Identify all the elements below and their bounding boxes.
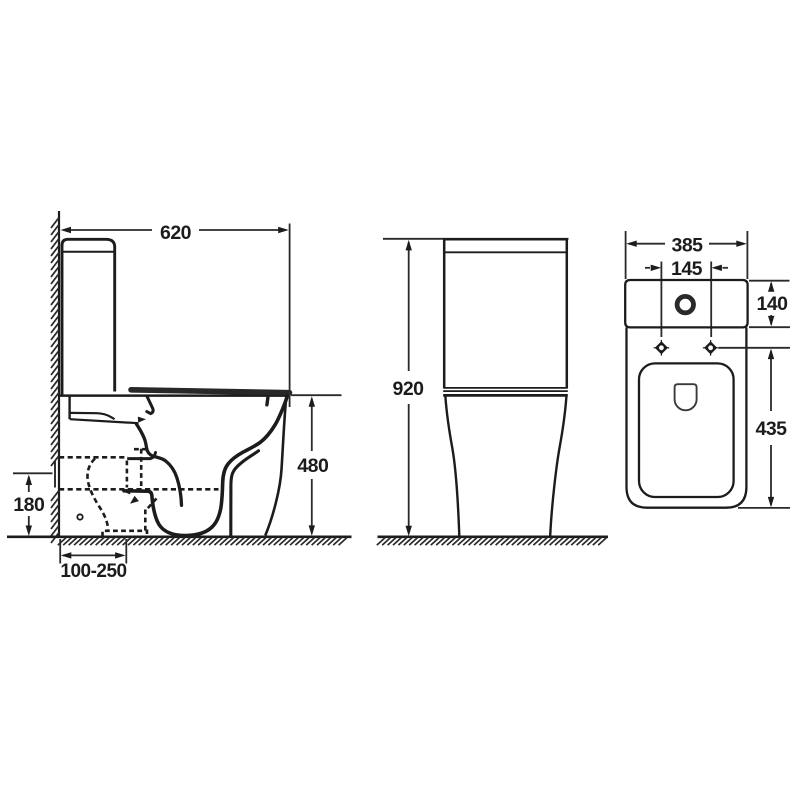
svg-text:435: 435 bbox=[755, 418, 787, 440]
svg-text:385: 385 bbox=[671, 235, 703, 257]
svg-text:100-250: 100-250 bbox=[60, 561, 126, 582]
svg-text:180: 180 bbox=[13, 494, 45, 516]
svg-text:140: 140 bbox=[756, 293, 788, 315]
svg-text:480: 480 bbox=[297, 455, 329, 477]
svg-text:920: 920 bbox=[392, 378, 424, 400]
svg-text:145: 145 bbox=[671, 258, 703, 280]
svg-text:620: 620 bbox=[160, 222, 192, 244]
